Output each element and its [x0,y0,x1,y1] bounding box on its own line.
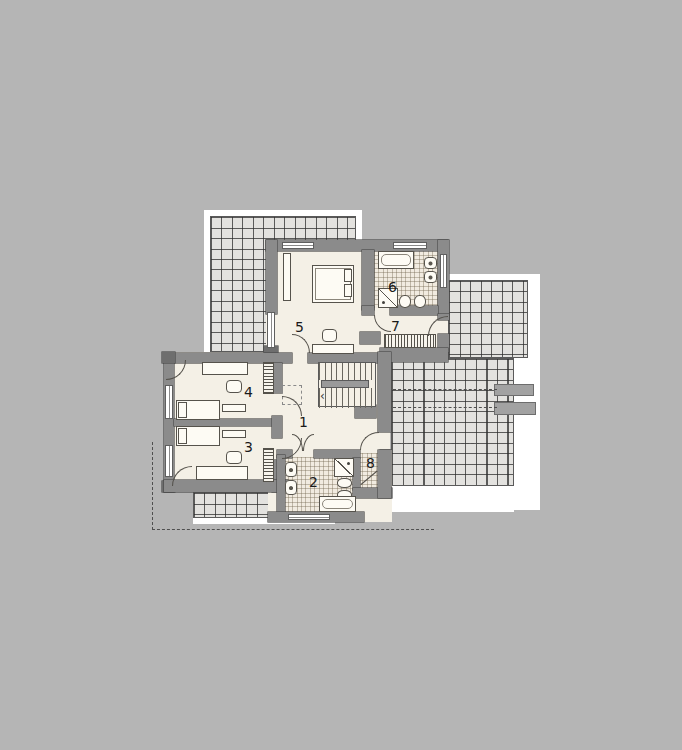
wall-hall-bottom-b [314,450,360,458]
bathtub-bath6-inner [381,254,411,266]
terrace-dashed-line-1 [393,389,497,390]
bathtub-bath2-inner [322,499,353,509]
staircase: ‹ [318,362,376,407]
overhang-outline-left [152,442,153,530]
chair-room5 [322,329,337,342]
pillow-room4 [178,402,187,418]
room-label-8: 8 [366,455,375,471]
sink-bath2-a [285,462,297,477]
stair-railing [321,380,369,388]
pillow-room5-a [344,269,352,282]
desk-room3 [196,466,248,480]
wall-room8-right [378,450,391,498]
shower-drain-bath2 [347,462,350,465]
terrace-dashed-line-3 [393,443,479,444]
bathtub-bath6 [378,251,414,269]
sidetable-room3 [222,430,246,438]
room-label-2: 2 [309,474,318,490]
window-room3-left [165,445,173,477]
room-label-6: 6 [388,279,397,295]
wall-bath2-room8 [353,458,360,490]
sink-bath6-a [424,257,437,269]
pergola-beam-1 [494,384,534,396]
window-bath2-bottom [288,514,330,520]
wall-bath6-bottom-a [362,306,374,315]
toilet-bath2 [337,478,352,488]
wall-hall-right [378,352,391,432]
window-room4-left [165,385,173,419]
terrace-top-right [448,280,528,358]
sidetable-room4 [222,404,246,412]
wall-upper-left [266,240,277,314]
desk-room5 [312,344,354,354]
chair-room3 [226,451,242,464]
pillow-room5-b [344,284,352,297]
pillow-room3 [178,428,187,444]
balcony-bottom-left [193,492,278,518]
bidet-bath6 [414,295,426,308]
bathtub-bath2 [319,496,356,512]
sink-bath6-b [424,271,437,283]
terrace-dashed-line-2 [393,407,497,408]
room-label-4: 4 [244,384,253,400]
terrace-right [391,358,514,486]
radiator-room3 [263,448,274,482]
stair-direction-arrow: ‹ [320,391,325,401]
wall-room4-room3 [174,419,274,426]
wall-hall-left-b [272,416,282,438]
wall-bath2-left [277,455,285,513]
room-label-7: 7 [391,318,400,334]
window-room5-top [282,242,314,249]
room-label-5: 5 [295,319,304,335]
wall-room5-bath6 [362,250,374,310]
sink-bath2-b [285,480,297,495]
stair-flight-lower [319,388,377,408]
wardrobe-room5 [283,253,291,301]
window-bath6-right [440,254,447,288]
toilet-bath6 [399,295,411,308]
room-label-3: 3 [244,439,253,455]
room-label-1: 1 [299,414,308,430]
wall-corridor-stub [360,332,380,344]
shower-bath2 [334,458,354,477]
wardrobe-room7 [384,334,436,348]
overhang-outline-bottom [152,529,434,530]
floor-plan: ‹ 1 [0,0,682,750]
window-room5-left [267,312,275,348]
pergola-beam-2 [494,402,536,415]
stair-flight-upper [319,363,377,380]
desk-room4 [202,362,248,375]
shower-drain-bath6 [382,301,385,304]
window-bath6-top [393,242,427,249]
roof-plate-bottom-right [388,484,514,512]
radiator-room4 [263,362,274,394]
chair-room4 [226,380,242,393]
